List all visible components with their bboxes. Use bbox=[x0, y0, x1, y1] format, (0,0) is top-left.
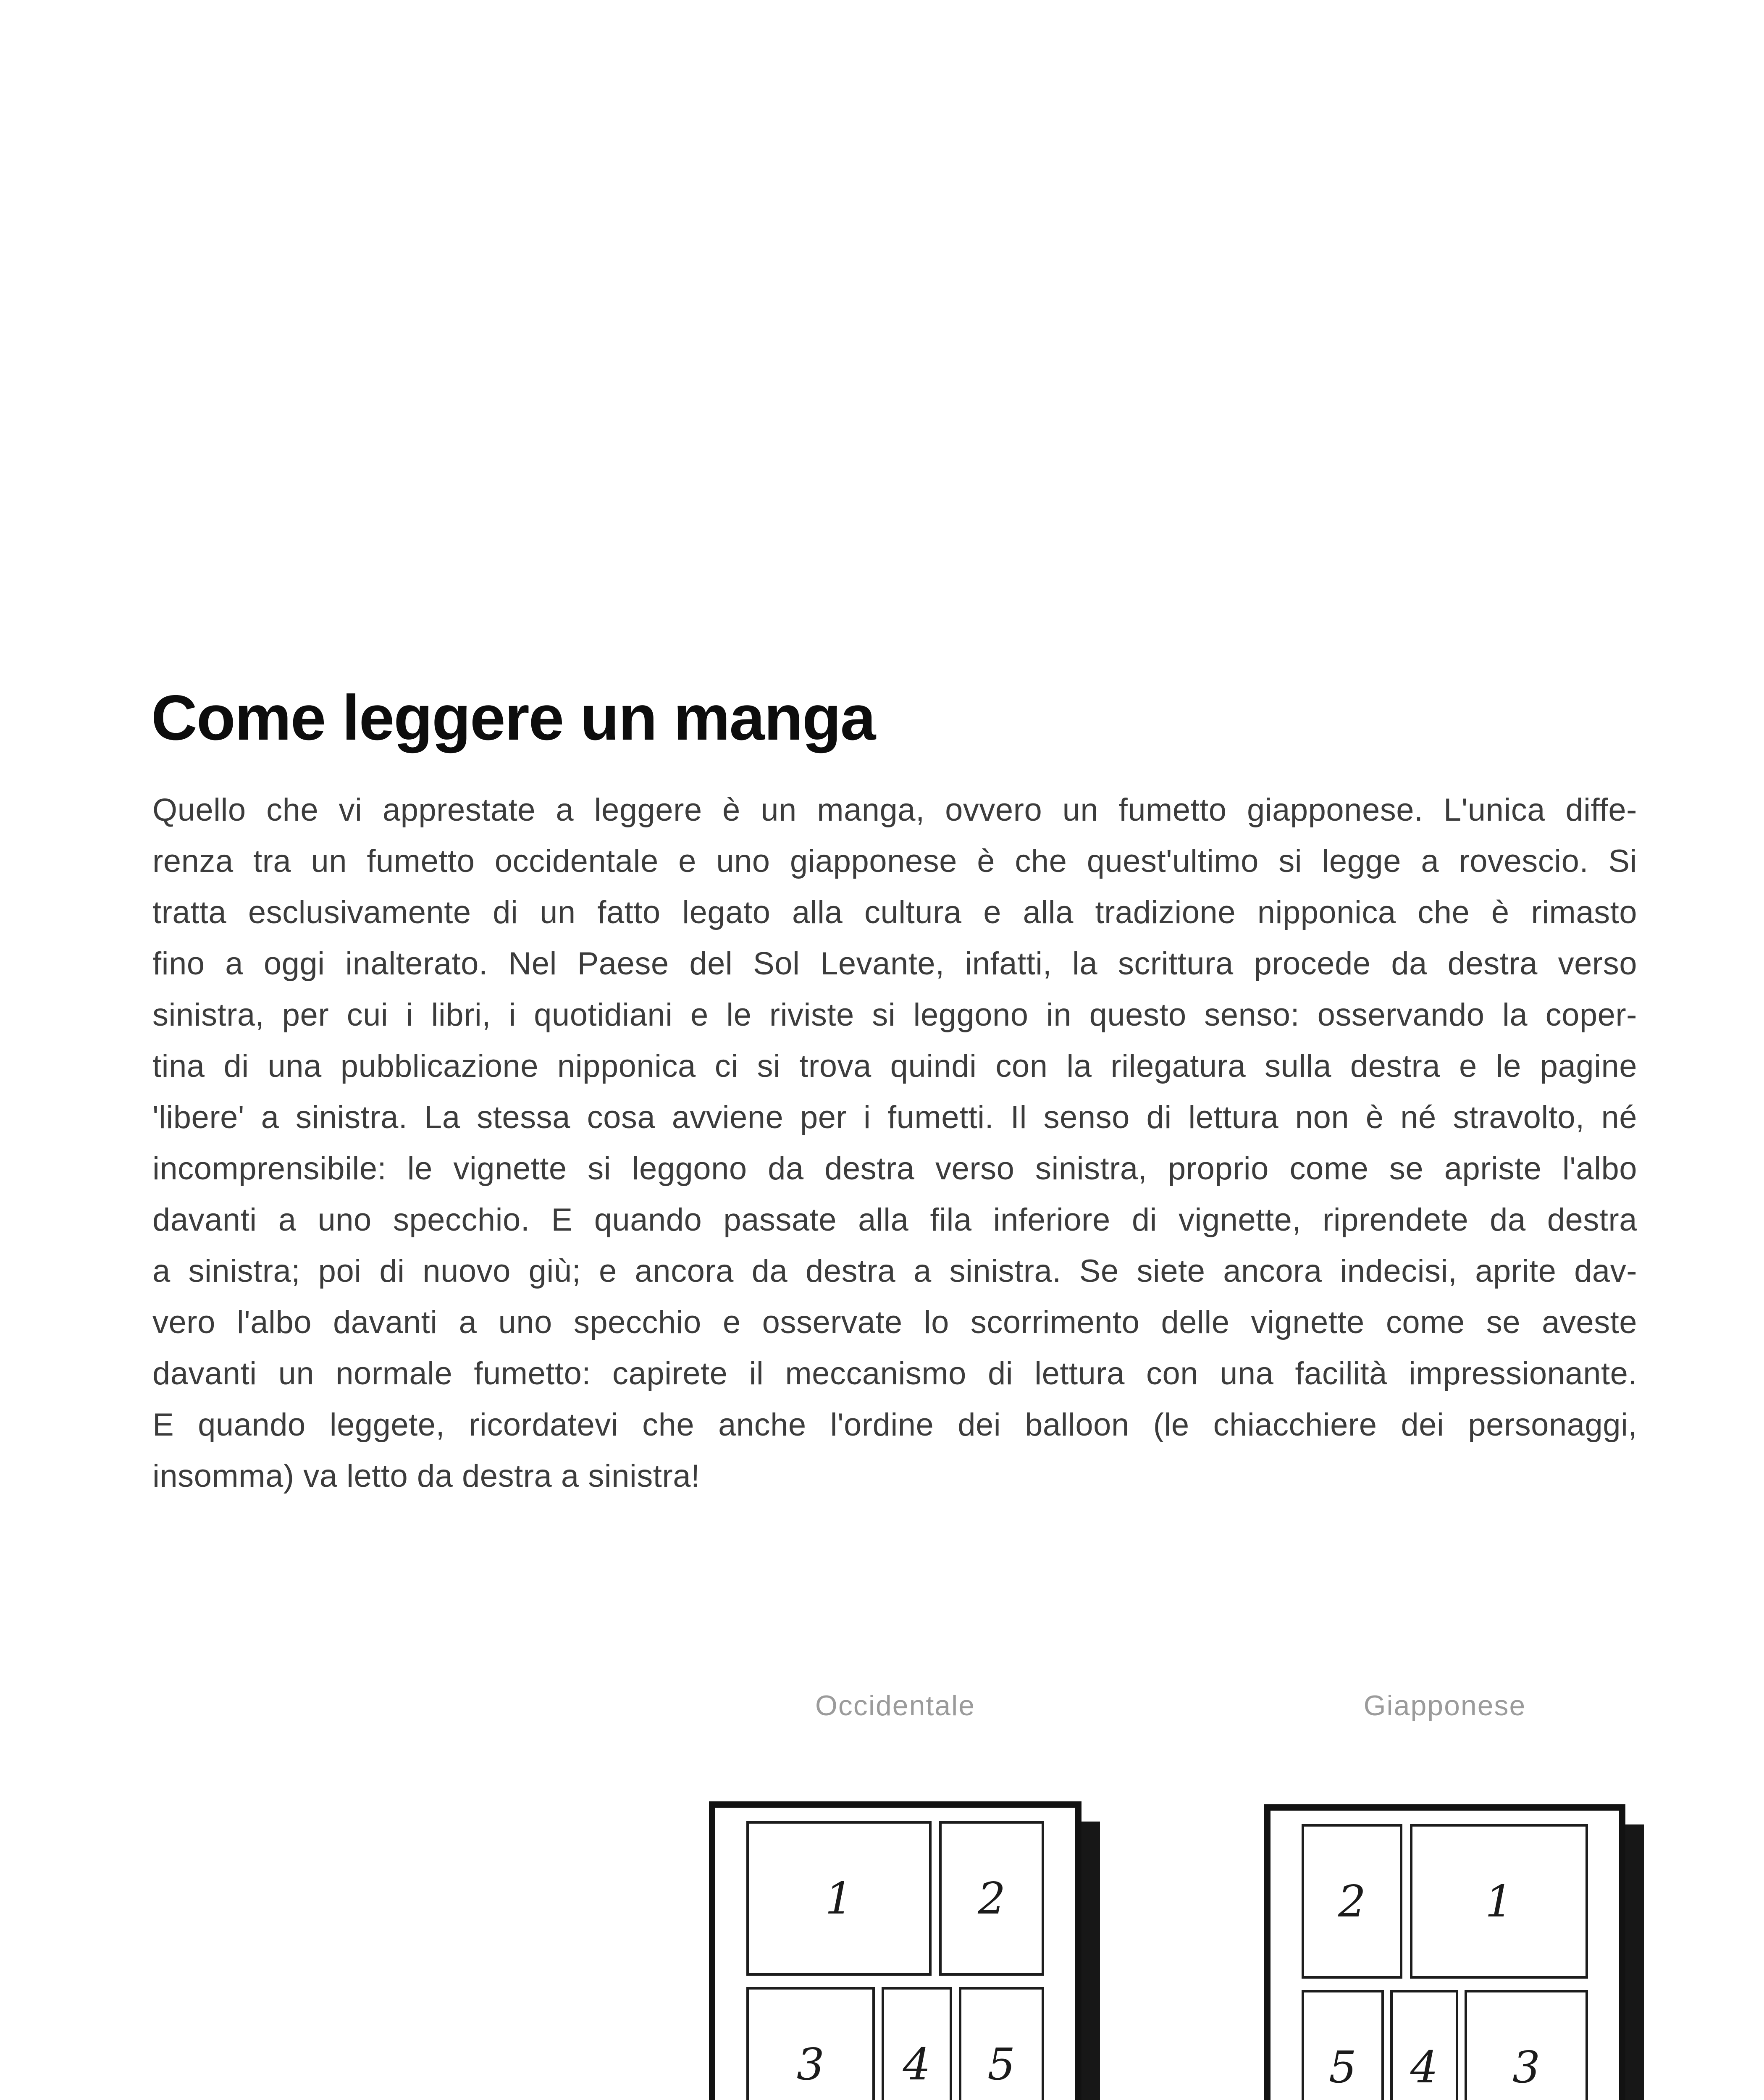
panel-number: 3 bbox=[1512, 2042, 1540, 2093]
panel-row: 5 4 3 bbox=[1302, 1990, 1588, 2100]
comic-panel: 1 bbox=[1410, 1824, 1588, 1979]
paragraph-line: E quando leggete, ricordatevi che anche … bbox=[152, 1399, 1637, 1451]
diagram-label-japanese: Giapponese bbox=[1264, 1689, 1625, 1722]
paragraph-line: tratta esclusivamente di un fatto legato… bbox=[152, 887, 1637, 938]
paragraph-line: incomprensibile: le vignette si leggono … bbox=[152, 1143, 1637, 1194]
panel-row: 1 2 bbox=[746, 1821, 1044, 1976]
paragraph-line: tina di una pubblicazione nipponica ci s… bbox=[152, 1041, 1637, 1092]
comic-panel: 5 bbox=[1302, 1990, 1384, 2100]
comic-panel: 2 bbox=[1302, 1824, 1402, 1979]
book-page: { "page": { "title": "Come leggere un ma… bbox=[0, 0, 1764, 2100]
paragraph-line: vero l'albo davanti a uno specchio e oss… bbox=[152, 1297, 1637, 1348]
panel-number: 4 bbox=[1410, 2042, 1438, 2093]
comic-panel: 2 bbox=[939, 1821, 1044, 1976]
paragraph-line: Quello che vi apprestate a leggere è un … bbox=[152, 785, 1637, 836]
comic-panel: 5 bbox=[959, 1987, 1044, 2100]
diagram-label-western: Occidentale bbox=[709, 1689, 1081, 1722]
paragraph-line: davanti un normale fumetto: capirete il … bbox=[152, 1348, 1637, 1399]
article-paragraph: Quello che vi apprestate a leggere è un … bbox=[152, 785, 1637, 1502]
comic-page-western: 1 2 3 4 5 6 7 bbox=[709, 1801, 1081, 2100]
panel-number: 1 bbox=[825, 1873, 853, 1924]
panel-number: 3 bbox=[797, 2039, 824, 2090]
panel-number: 2 bbox=[978, 1873, 1005, 1924]
panel-row: 2 1 bbox=[1302, 1824, 1588, 1979]
paragraph-line: insomma) va letto da destra a sinistra! bbox=[152, 1451, 1637, 1502]
paragraph-line: davanti a uno specchio. E quando passate… bbox=[152, 1194, 1637, 1246]
page-title: Come leggere un manga bbox=[151, 681, 875, 755]
comic-panel: 3 bbox=[746, 1987, 875, 2100]
panel-number: 4 bbox=[903, 2039, 930, 2090]
paragraph-line: fino a oggi inalterato. Nel Paese del So… bbox=[152, 938, 1637, 990]
comic-panel: 4 bbox=[882, 1987, 952, 2100]
panel-number: 5 bbox=[987, 2039, 1015, 2090]
panel-number: 5 bbox=[1329, 2042, 1357, 2093]
panel-row: 3 4 5 bbox=[746, 1987, 1044, 2100]
comic-page-japanese: 2 1 5 4 3 7 6 bbox=[1264, 1804, 1625, 2100]
paragraph-line: renza tra un fumetto occidentale e uno g… bbox=[152, 836, 1637, 887]
paragraph-line: sinistra, per cui i libri, i quotidiani … bbox=[152, 990, 1637, 1041]
comic-panel: 3 bbox=[1465, 1990, 1588, 2100]
paragraph-line: a sinistra; poi di nuovo giù; e ancora d… bbox=[152, 1246, 1637, 1297]
panel-number: 2 bbox=[1338, 1876, 1366, 1927]
paragraph-line: 'libere' a sinistra. La stessa cosa avvi… bbox=[152, 1092, 1637, 1143]
panel-number: 1 bbox=[1485, 1876, 1513, 1927]
comic-panel: 1 bbox=[746, 1821, 932, 1976]
comic-panel: 4 bbox=[1390, 1990, 1458, 2100]
